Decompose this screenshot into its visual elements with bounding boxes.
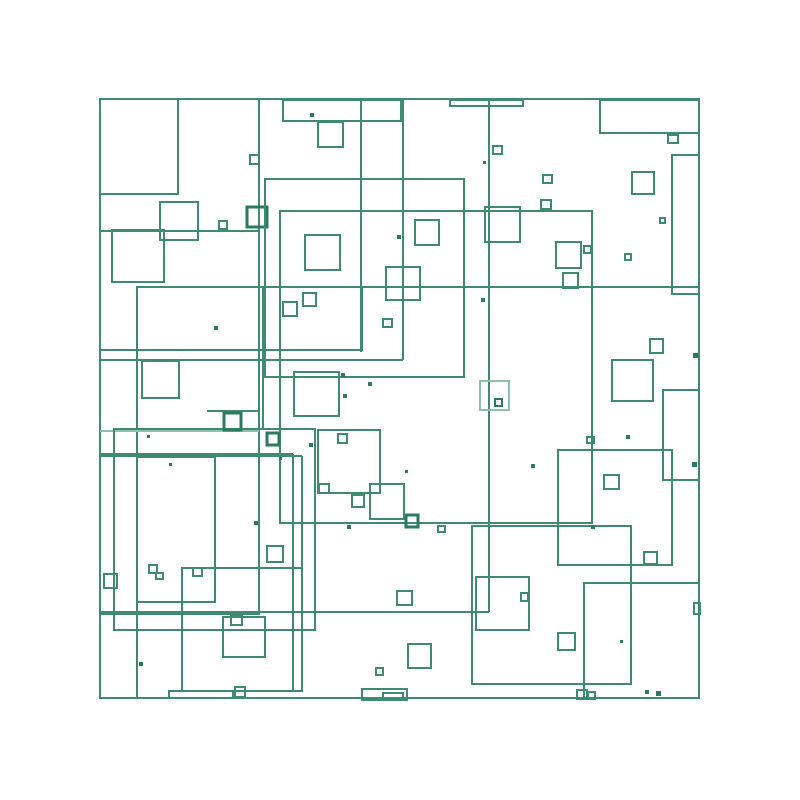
outlined-square	[563, 273, 578, 288]
outlined-square	[219, 221, 227, 229]
outlined-square	[644, 552, 657, 564]
filled-dot	[309, 443, 313, 447]
filled-dot	[368, 382, 372, 386]
outlined-square	[224, 413, 241, 430]
abstract-squares-artwork	[0, 0, 800, 800]
outlined-square	[495, 399, 502, 406]
filled-dot	[254, 521, 258, 525]
filled-dot	[169, 463, 172, 466]
filled-dot	[481, 298, 485, 302]
outlined-square	[600, 100, 699, 133]
outlined-square	[305, 235, 340, 270]
outlined-square	[406, 515, 418, 527]
artwork-border	[100, 99, 699, 698]
outlined-square	[294, 372, 339, 416]
outlined-square	[668, 135, 678, 143]
outlined-square	[267, 546, 283, 562]
filled-dot	[343, 394, 347, 398]
outlined-square	[450, 100, 523, 106]
outlined-square	[223, 617, 265, 657]
outlined-square	[370, 484, 404, 519]
outlined-square	[283, 302, 297, 316]
outlined-square	[694, 603, 700, 614]
outlined-square	[438, 526, 445, 532]
filled-dot	[405, 470, 408, 473]
outlined-square	[100, 99, 178, 194]
outlined-square	[521, 593, 528, 601]
outlined-square	[558, 633, 575, 650]
outlined-square	[250, 155, 259, 164]
outlined-square	[376, 668, 383, 675]
outlined-square	[303, 293, 316, 306]
filled-dot	[279, 457, 282, 460]
outlined-square	[485, 207, 520, 242]
filled-dot	[147, 435, 150, 438]
filled-dot	[347, 525, 351, 529]
outlined-square	[149, 565, 157, 573]
outlined-square	[584, 246, 591, 253]
filled-dot	[341, 373, 345, 377]
outlined-square	[160, 202, 198, 240]
squares-canvas	[0, 0, 800, 800]
outlined-square	[604, 475, 619, 489]
filled-dot	[310, 113, 314, 117]
filled-dot	[626, 435, 630, 439]
outlined-square	[352, 495, 364, 507]
outlined-square	[541, 200, 551, 209]
filled-dot	[531, 464, 535, 468]
outlined-square	[543, 175, 552, 183]
filled-dot	[397, 235, 401, 239]
outlined-square	[660, 218, 665, 223]
outlined-square	[625, 254, 631, 260]
outlined-square	[265, 179, 464, 377]
outlined-square	[493, 146, 502, 154]
outlined-square	[137, 457, 215, 602]
outlined-square	[267, 433, 279, 445]
outlined-square	[672, 155, 699, 294]
outlined-square	[415, 220, 439, 245]
outlined-square	[338, 434, 347, 443]
outlined-square	[137, 287, 362, 350]
filled-dot	[645, 690, 649, 694]
filled-dot	[139, 662, 143, 666]
filled-dot	[620, 640, 623, 643]
outlined-square	[476, 577, 529, 630]
outlined-square	[612, 360, 653, 401]
filled-dot	[692, 462, 697, 467]
filled-dot	[591, 525, 595, 529]
outlined-square	[650, 339, 663, 353]
filled-dot	[214, 326, 218, 330]
outlined-square	[112, 230, 164, 282]
outlined-square	[558, 450, 672, 565]
outlined-square	[556, 242, 581, 268]
outlined-square	[318, 122, 343, 147]
outlined-square	[283, 100, 401, 121]
filled-dot	[656, 691, 661, 696]
outlined-square	[383, 319, 392, 327]
outlined-square	[142, 361, 179, 398]
outlined-square	[472, 526, 631, 684]
outlined-square	[193, 568, 202, 576]
outlined-square	[584, 583, 699, 698]
filled-dot	[693, 353, 698, 358]
outlined-square	[104, 574, 117, 588]
outlined-square	[632, 172, 654, 194]
outlined-square	[397, 591, 412, 605]
filled-dot	[483, 161, 486, 164]
outlined-square	[408, 644, 431, 668]
outlined-square	[156, 573, 163, 579]
outlined-square	[319, 484, 329, 493]
outlined-square	[169, 691, 233, 698]
outlined-square	[280, 211, 592, 523]
